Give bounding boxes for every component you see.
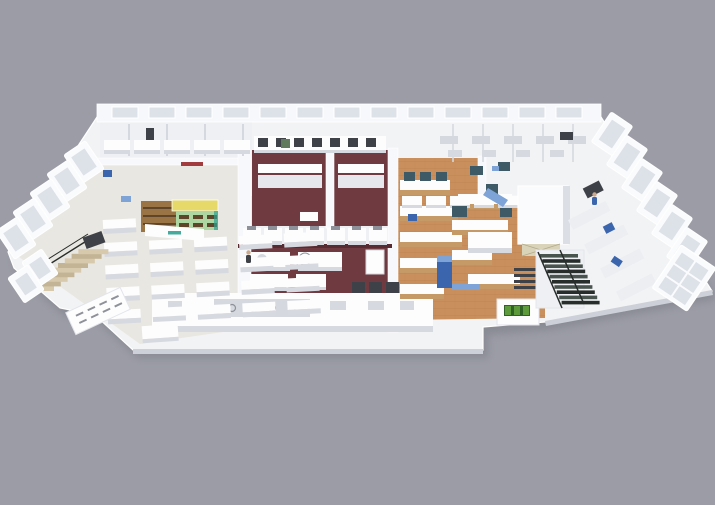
person-waiting-area xyxy=(246,250,251,263)
analyzer-hood-3 xyxy=(436,172,447,181)
analyzer-6 xyxy=(452,206,467,217)
analyzer-hood-2 xyxy=(420,172,431,181)
analyzer-hood-1 xyxy=(404,172,415,181)
ne-robot-arm xyxy=(560,132,573,140)
labs-north-green-machine xyxy=(281,139,290,148)
person-se-wing xyxy=(592,192,597,205)
kiosk-display-case xyxy=(176,211,218,230)
waiting-south-desk xyxy=(142,324,179,343)
upper-lab-blue-door-sign xyxy=(103,170,112,177)
pass-through-slats xyxy=(505,306,529,315)
upper-lab-dark-equipment xyxy=(146,128,154,140)
isometric-floorplan-canvas xyxy=(0,0,715,505)
labB-island-bench-top xyxy=(338,164,384,173)
elevator-side-shade xyxy=(563,186,570,244)
analyzer-5 xyxy=(498,162,510,171)
blue-module-small xyxy=(408,214,417,221)
labA-step-table xyxy=(300,212,318,221)
upper-lab-red-binders xyxy=(181,162,203,166)
labA-island-bench-body xyxy=(258,175,322,188)
labA-island-bench-top xyxy=(258,164,322,173)
blue-cabinet-top xyxy=(437,256,452,262)
wall-waiting-north xyxy=(95,158,240,165)
kiosk-side-trim xyxy=(214,211,218,230)
south-bench-sink-4 xyxy=(400,301,414,310)
wall-maroon-divider xyxy=(326,148,334,228)
analyzer-7 xyxy=(500,208,512,217)
upper-lab-blue-tray xyxy=(121,196,131,202)
kiosk-logo-mark xyxy=(168,231,181,235)
upper-lab-benches xyxy=(104,140,250,154)
south-bench-sink-2 xyxy=(330,301,346,310)
south-lab-dark-cabinets xyxy=(352,282,399,293)
south-bench-sink-3 xyxy=(368,301,384,310)
ne-blue-device xyxy=(492,166,499,171)
blue-strip xyxy=(452,284,480,290)
stairwell-floor xyxy=(536,250,584,308)
south-long-bench-front xyxy=(152,326,433,332)
orange-bench-1 xyxy=(400,180,450,195)
lab-floorplan-render xyxy=(0,0,715,505)
analyzer-4 xyxy=(470,166,483,175)
orange-center-table xyxy=(468,232,512,253)
labB-island-bench-body xyxy=(338,175,384,188)
south-wall-face xyxy=(133,349,483,354)
elevator-block xyxy=(518,186,568,244)
kiosk-canopy xyxy=(172,200,218,211)
south-lab-fridge xyxy=(366,250,384,274)
